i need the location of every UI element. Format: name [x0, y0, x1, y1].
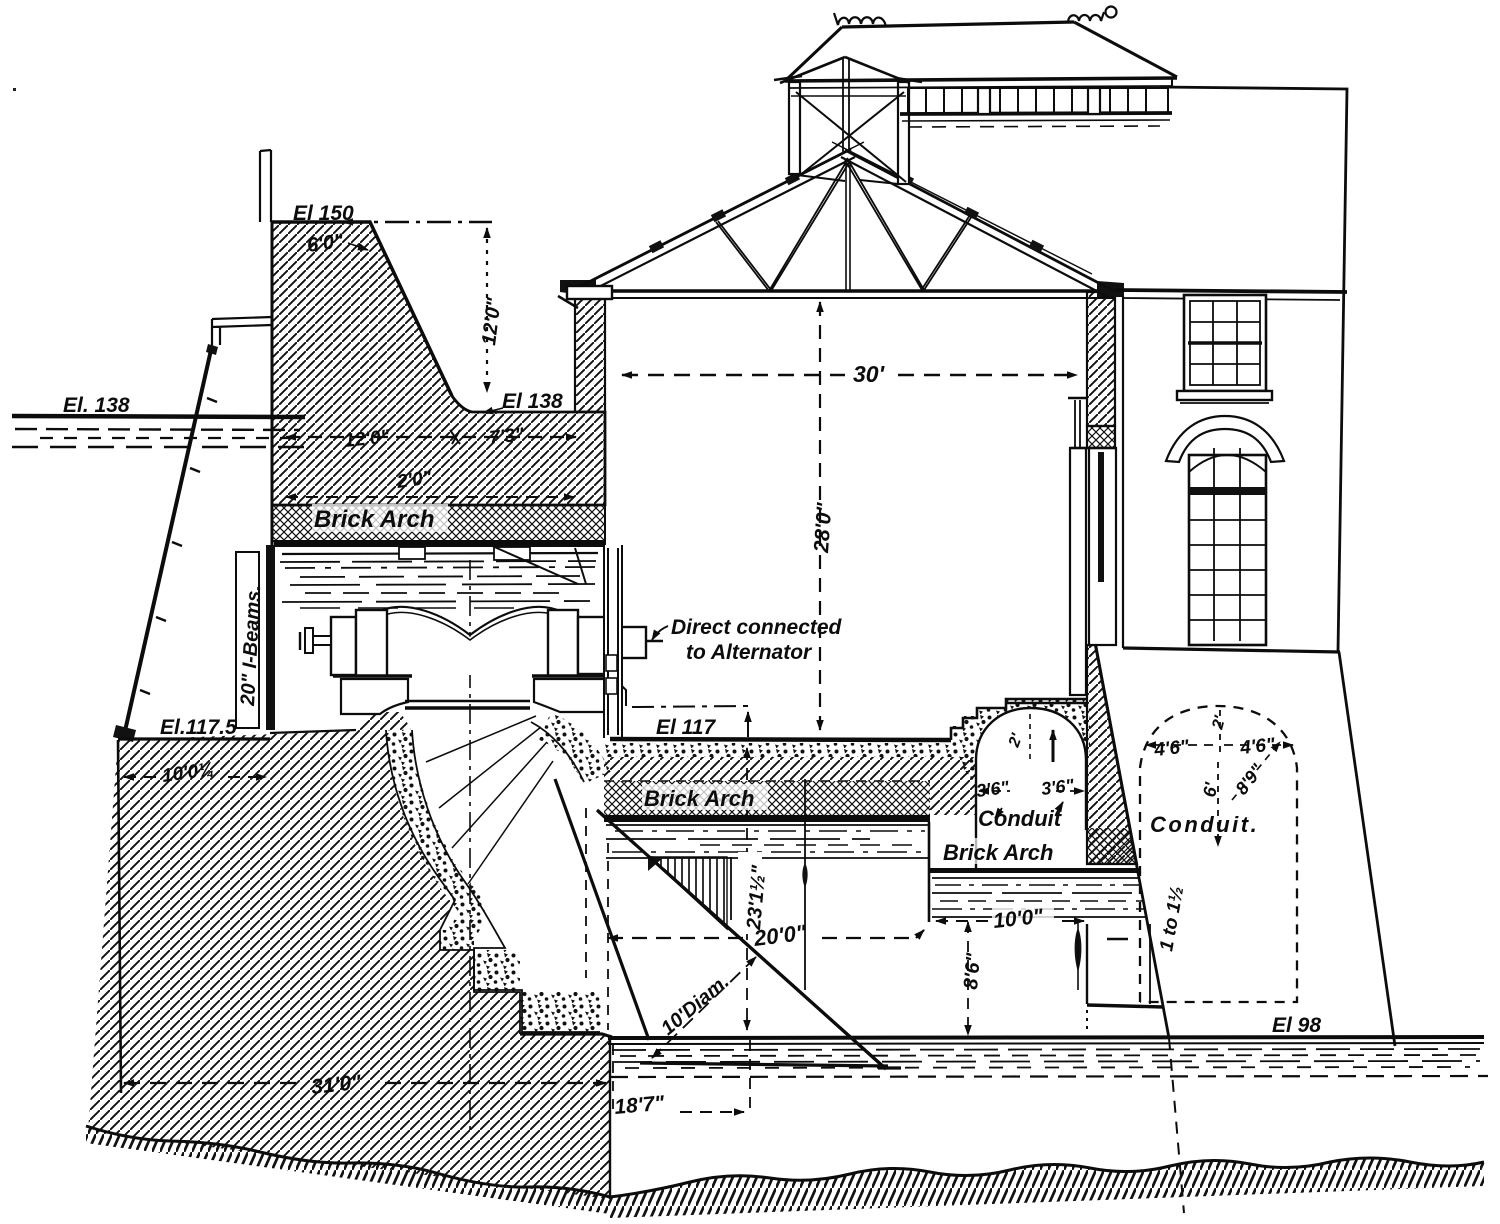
svg-text:Brick Arch: Brick Arch: [314, 506, 435, 533]
svg-text:El. 138: El. 138: [63, 394, 130, 417]
svg-text:3'6": 3'6": [975, 777, 1010, 801]
svg-text:Direct connected: Direct connected: [671, 616, 843, 639]
svg-text:El 150: El 150: [293, 202, 354, 225]
svg-text:8'6": 8'6": [960, 952, 985, 991]
svg-text:28'0": 28'0": [810, 501, 837, 555]
svg-text:3'6": 3'6": [1040, 775, 1075, 799]
svg-text:El 98: El 98: [1272, 1014, 1321, 1037]
svg-text:30': 30': [853, 361, 886, 387]
svg-text:Brick Arch: Brick Arch: [644, 786, 754, 811]
svg-text:El 117: El 117: [656, 716, 716, 739]
svg-text:Conduit.: Conduit.: [1150, 812, 1259, 837]
svg-text:7'3": 7'3": [488, 424, 526, 449]
svg-text:Brick Arch: Brick Arch: [943, 840, 1053, 865]
svg-text:4'6": 4'6": [1238, 734, 1277, 759]
svg-text:El.117.5: El.117.5: [160, 716, 237, 739]
svg-text:Conduit: Conduit: [978, 806, 1063, 831]
svg-text:El 138: El 138: [502, 390, 563, 413]
svg-text:4'6": 4'6": [1152, 736, 1191, 761]
svg-text:to Alternator: to Alternator: [686, 641, 813, 664]
svg-text:18'7": 18'7": [613, 1092, 666, 1119]
